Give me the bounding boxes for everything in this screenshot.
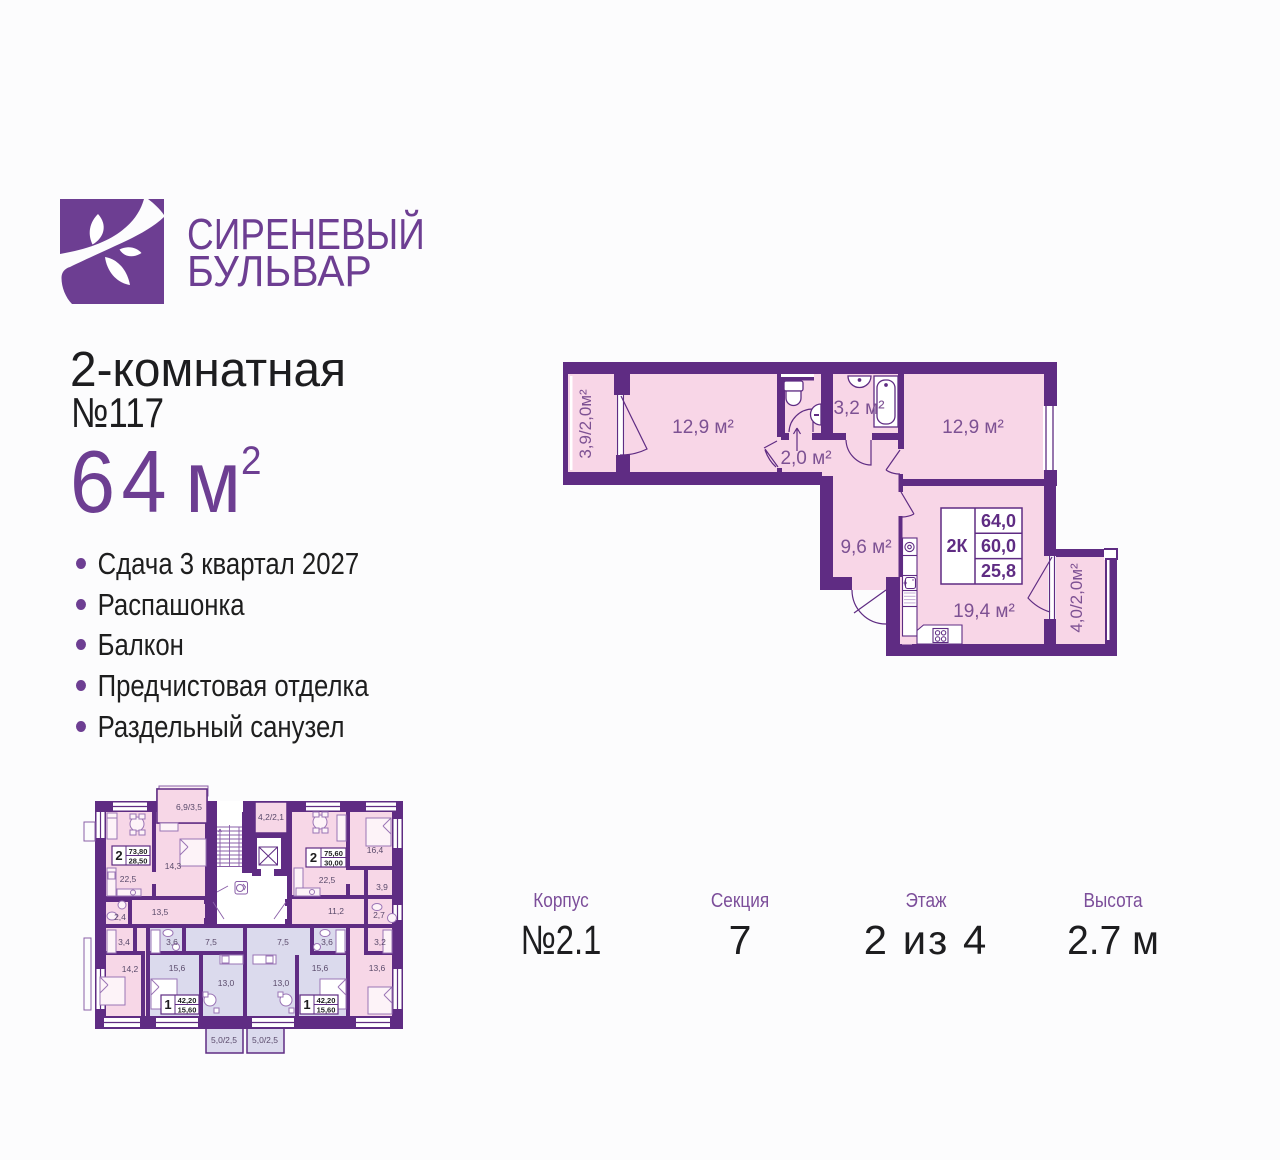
svg-text:15,60: 15,60 — [317, 1006, 336, 1015]
svg-text:15,6: 15,6 — [312, 963, 329, 973]
svg-text:3,6: 3,6 — [166, 937, 178, 947]
svg-text:13,6: 13,6 — [369, 963, 386, 973]
svg-text:13,5: 13,5 — [152, 907, 169, 917]
svg-text:75,60: 75,60 — [324, 849, 343, 858]
svg-text:11,2: 11,2 — [328, 906, 344, 916]
svg-text:2,4: 2,4 — [114, 912, 126, 922]
svg-text:42,20: 42,20 — [317, 996, 336, 1005]
svg-text:2К: 2К — [947, 536, 969, 556]
svg-text:12,9 м²: 12,9 м² — [672, 417, 734, 438]
svg-text:13,0: 13,0 — [218, 978, 235, 988]
svg-text:6,9/3,5: 6,9/3,5 — [176, 802, 202, 812]
svg-text:13,0: 13,0 — [273, 978, 290, 988]
svg-text:22,5: 22,5 — [319, 875, 336, 885]
svg-text:25,8: 25,8 — [981, 561, 1016, 581]
svg-text:2: 2 — [310, 850, 317, 865]
svg-text:19,4 м²: 19,4 м² — [953, 601, 1015, 622]
svg-text:7,5: 7,5 — [277, 937, 289, 947]
svg-text:5,0/2,5: 5,0/2,5 — [252, 1035, 278, 1045]
svg-text:3,9: 3,9 — [376, 882, 388, 892]
svg-text:2,7: 2,7 — [373, 910, 385, 920]
svg-text:14,2: 14,2 — [122, 964, 139, 974]
svg-text:3,6: 3,6 — [321, 937, 333, 947]
svg-text:3,4: 3,4 — [118, 937, 130, 947]
svg-text:14,3: 14,3 — [165, 861, 182, 871]
svg-text:42,20: 42,20 — [178, 996, 197, 1005]
svg-text:15,60: 15,60 — [178, 1006, 197, 1015]
svg-text:2: 2 — [115, 848, 122, 863]
svg-text:28,50: 28,50 — [129, 857, 148, 866]
svg-text:12,9 м²: 12,9 м² — [942, 417, 1004, 438]
svg-text:9,6 м²: 9,6 м² — [840, 537, 891, 558]
svg-text:7,5: 7,5 — [205, 937, 217, 947]
svg-text:1: 1 — [164, 997, 171, 1012]
svg-text:4,0/2,0м²: 4,0/2,0м² — [1067, 563, 1086, 633]
svg-text:4,2/2,1: 4,2/2,1 — [258, 812, 284, 822]
svg-text:22,5: 22,5 — [120, 874, 137, 884]
svg-text:5,0/2,5: 5,0/2,5 — [211, 1035, 237, 1045]
svg-text:2,0 м²: 2,0 м² — [780, 448, 831, 469]
svg-text:3,2 м²: 3,2 м² — [833, 398, 884, 419]
svg-text:3,9/2,0м²: 3,9/2,0м² — [576, 389, 595, 459]
svg-text:30,00: 30,00 — [324, 859, 343, 868]
svg-text:15,6: 15,6 — [169, 963, 186, 973]
svg-text:16,4: 16,4 — [367, 845, 384, 855]
svg-text:60,0: 60,0 — [981, 536, 1016, 556]
svg-text:1: 1 — [303, 997, 310, 1012]
svg-text:3,2: 3,2 — [374, 937, 386, 947]
svg-text:64,0: 64,0 — [981, 511, 1016, 531]
svg-text:73,80: 73,80 — [129, 847, 148, 856]
